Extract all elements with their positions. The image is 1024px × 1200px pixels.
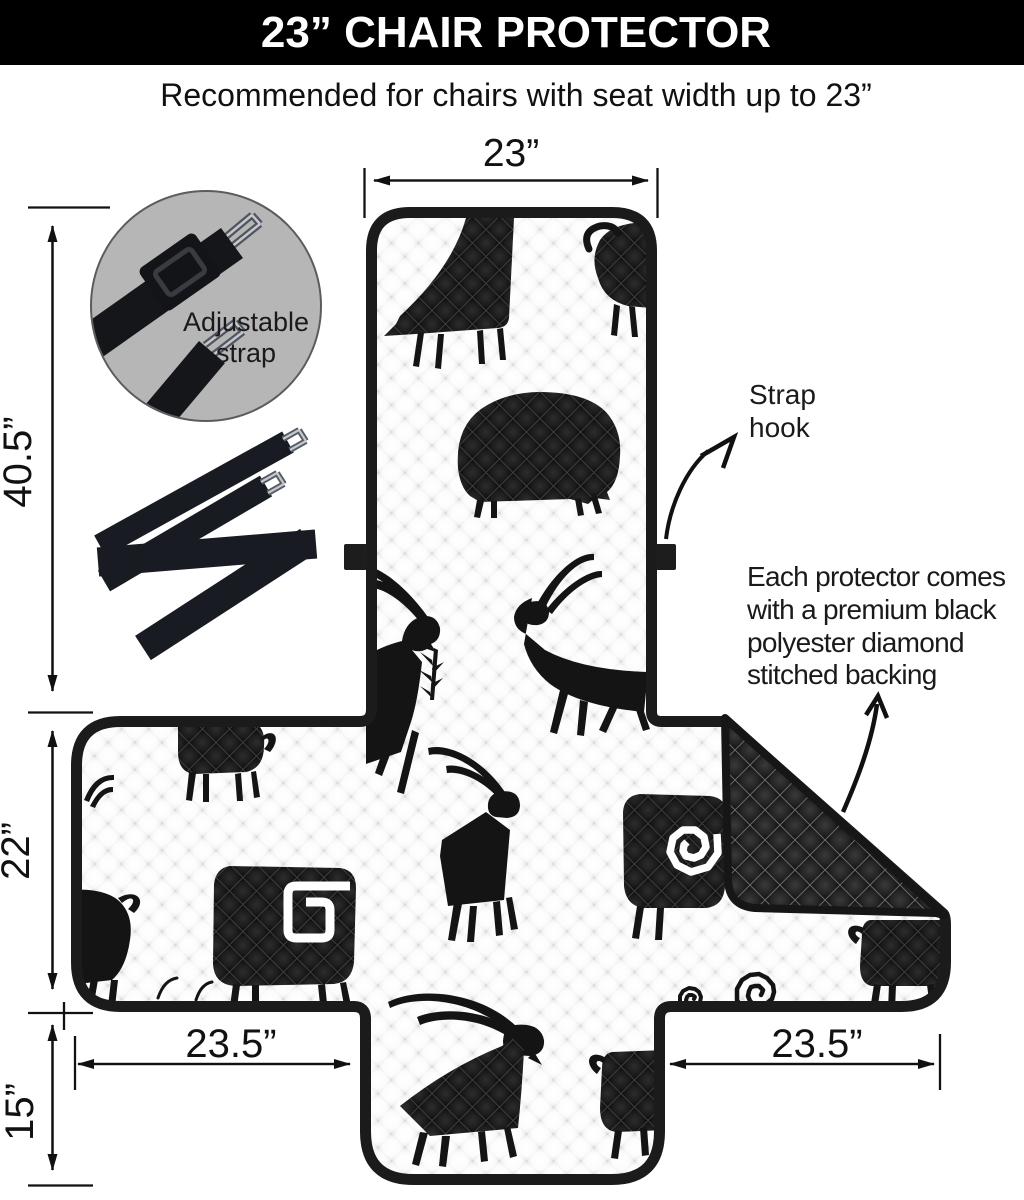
- svg-text:Strap: Strap: [749, 379, 816, 410]
- svg-text:15”: 15”: [0, 1083, 42, 1141]
- svg-text:23.5”: 23.5”: [771, 1022, 862, 1066]
- svg-text:polyester diamond: polyester diamond: [747, 627, 964, 658]
- svg-text:22”: 22”: [0, 822, 38, 880]
- svg-text:with a premium black: with a premium black: [746, 594, 998, 625]
- svg-text:strap: strap: [216, 338, 276, 368]
- svg-text:23”: 23”: [483, 132, 539, 175]
- svg-text:hook: hook: [749, 412, 811, 443]
- svg-text:stitched backing: stitched backing: [747, 659, 937, 690]
- svg-text:Adjustable: Adjustable: [183, 307, 309, 337]
- svg-text:23.5”: 23.5”: [185, 1022, 276, 1066]
- svg-text:Each protector comes: Each protector comes: [747, 561, 1005, 592]
- svg-text:40.5”: 40.5”: [0, 416, 40, 507]
